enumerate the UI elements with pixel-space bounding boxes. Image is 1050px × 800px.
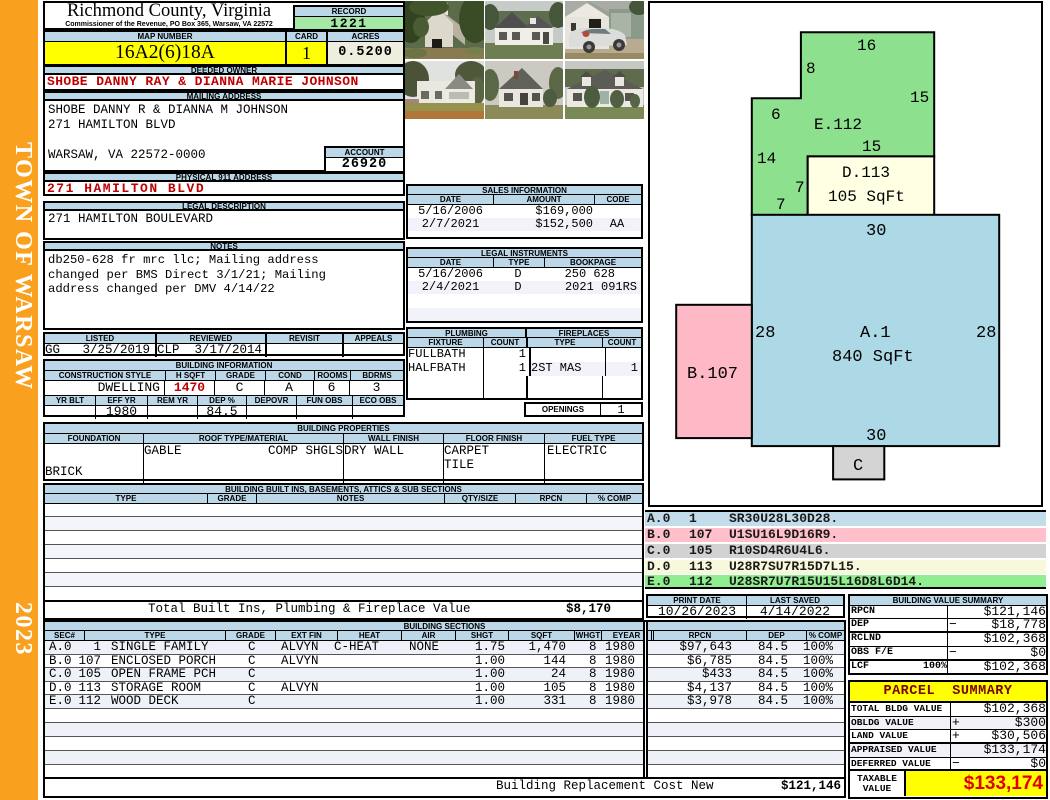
svg-text:14: 14 bbox=[757, 150, 776, 168]
svg-text:E.112: E.112 bbox=[814, 116, 862, 134]
svg-text:6: 6 bbox=[771, 106, 781, 124]
svg-text:105 SqFt: 105 SqFt bbox=[828, 188, 905, 206]
svg-text:30: 30 bbox=[866, 427, 886, 446]
svg-text:C: C bbox=[853, 457, 863, 476]
svg-text:15: 15 bbox=[862, 138, 881, 156]
svg-text:8: 8 bbox=[806, 60, 816, 78]
svg-text:7: 7 bbox=[776, 196, 786, 214]
svg-text:30: 30 bbox=[866, 222, 886, 241]
svg-text:28: 28 bbox=[976, 324, 996, 343]
svg-text:A.1: A.1 bbox=[860, 324, 891, 343]
svg-text:840 SqFt: 840 SqFt bbox=[832, 348, 914, 367]
svg-text:16: 16 bbox=[857, 37, 876, 55]
svg-text:D.113: D.113 bbox=[842, 164, 890, 182]
svg-text:15: 15 bbox=[910, 89, 929, 107]
svg-text:28: 28 bbox=[755, 324, 775, 343]
svg-text:7: 7 bbox=[795, 179, 805, 197]
svg-text:B.107: B.107 bbox=[687, 365, 738, 384]
